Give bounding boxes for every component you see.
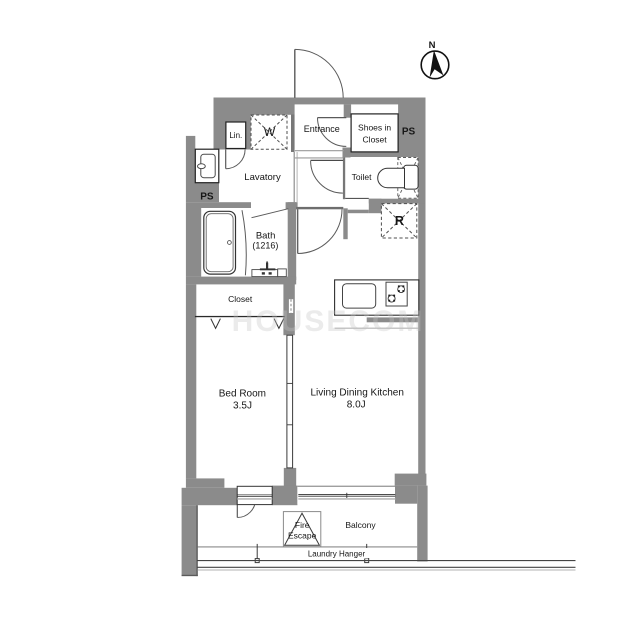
svg-text:(1216): (1216) (252, 241, 278, 251)
svg-text:Escape: Escape (288, 531, 317, 541)
svg-text:HOUSECOM: HOUSECOM (232, 305, 425, 338)
svg-text:R: R (395, 214, 404, 228)
svg-text:Closet: Closet (228, 294, 253, 304)
svg-text:PS: PS (402, 126, 416, 137)
svg-text:Living Dining Kitchen: Living Dining Kitchen (311, 388, 404, 399)
svg-text:Fire: Fire (295, 520, 310, 530)
svg-text:3.5J: 3.5J (233, 400, 252, 411)
svg-text:Closet: Closet (363, 134, 388, 144)
svg-text:Lin.: Lin. (229, 131, 242, 140)
svg-text:Bed Room: Bed Room (219, 388, 266, 399)
svg-text:Entrance: Entrance (304, 124, 340, 134)
svg-text:Laundry Hanger: Laundry Hanger (308, 549, 366, 558)
svg-text:Shoes in: Shoes in (358, 123, 391, 133)
svg-text:Balcony: Balcony (345, 520, 376, 530)
svg-text:Toilet: Toilet (352, 172, 372, 182)
svg-text:8.0J: 8.0J (347, 399, 366, 410)
svg-text:N: N (429, 40, 436, 51)
svg-text:Lavatory: Lavatory (244, 172, 281, 183)
svg-text:W: W (264, 125, 276, 139)
svg-text:PS: PS (200, 191, 214, 202)
